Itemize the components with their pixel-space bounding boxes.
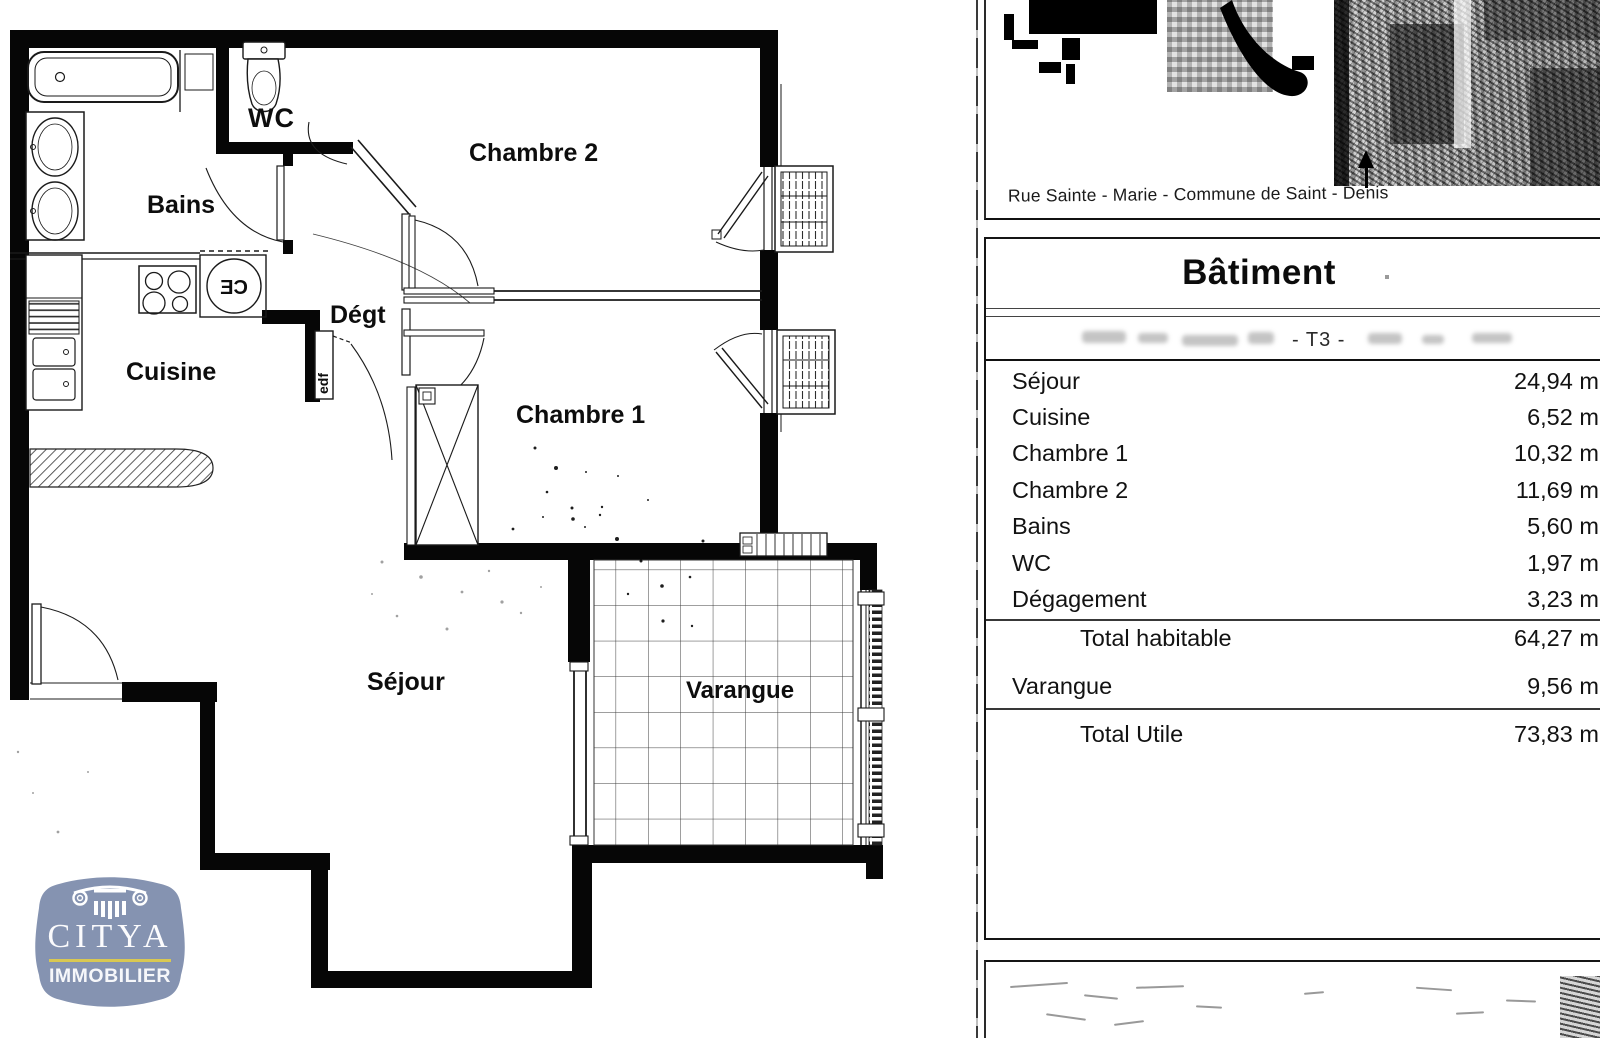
- row-label: Cuisine: [1012, 404, 1090, 431]
- room-label-sejour: Séjour: [367, 668, 445, 696]
- table-title: Bâtiment: [986, 253, 1600, 293]
- logo-tagline: IMMOBILIER: [33, 965, 187, 988]
- rule: [986, 308, 1600, 309]
- row-value: 6,52 m2: [1527, 404, 1600, 431]
- location-header-box: Rue Sainte - Marie - Commune de Saint - …: [984, 0, 1600, 220]
- table-row: Cuisine6,52 m2: [986, 399, 1600, 435]
- chambre2-door-arc: [415, 220, 478, 286]
- rule: [986, 619, 1600, 621]
- total-row-utile: Total Utile 73,83 m2: [986, 721, 1600, 748]
- row-value: 24,94 m2: [1514, 368, 1600, 395]
- citya-logo: CITYA IMMOBILIER: [33, 869, 187, 1011]
- bains-door-leaf: [277, 166, 284, 240]
- surface-rows: Séjour24,94 m2Cuisine6,52 m2Chambre 110,…: [986, 363, 1600, 618]
- subtitle-visible-text: - T3 -: [1292, 329, 1345, 352]
- table-subtitle: - T3 -: [986, 323, 1600, 357]
- toilet: [243, 42, 285, 59]
- row-value: 3,23 m2: [1527, 586, 1600, 613]
- room-label-chambre1: Chambre 1: [516, 401, 645, 429]
- row-label: Total habitable: [1080, 625, 1232, 652]
- chambre2-casement: [718, 172, 762, 234]
- bains-door-arc: [206, 168, 283, 242]
- row-label: Varangue: [1012, 673, 1112, 700]
- table-row: Dégagement3,23 m2: [986, 581, 1600, 617]
- table-row: Chambre 110,32 m2: [986, 436, 1600, 472]
- rule: [986, 359, 1600, 361]
- entry-door-arc: [41, 607, 118, 680]
- row-label: Dégagement: [1012, 586, 1147, 613]
- row-label: WC: [1012, 550, 1051, 577]
- chambre1-casement: [716, 352, 762, 408]
- page-fold-line: [976, 0, 978, 1038]
- row-label: Bains: [1012, 513, 1071, 540]
- degagement-door-arc: [351, 344, 392, 460]
- rule: [986, 708, 1600, 710]
- transom-grille: [740, 533, 827, 556]
- duct: [185, 54, 213, 90]
- row-value: 11,69 m2: [1516, 477, 1600, 504]
- logo-column-icon: [70, 879, 150, 921]
- notes-box: [984, 960, 1600, 1038]
- table-row: Séjour24,94 m2: [986, 363, 1600, 399]
- edf-label: edf: [315, 373, 331, 394]
- row-value: 9,56 m2: [1527, 673, 1600, 700]
- logo-divider: [49, 959, 171, 962]
- scanned-floorplan-page: WC Bains Chambre 2 Dégt Cuisine Chambre …: [0, 0, 1600, 1038]
- room-label-wc: WC: [248, 103, 295, 133]
- row-value: 64,27 m2: [1514, 625, 1600, 652]
- room-label-degt: Dégt: [330, 301, 386, 329]
- table-row: WC1,97 m2: [986, 545, 1600, 581]
- logo-brand-name: CITYA: [33, 918, 187, 956]
- room-label-cuisine: Cuisine: [126, 358, 216, 386]
- address-label: Rue Sainte - Marie - Commune de Saint - …: [1008, 182, 1389, 206]
- chambre1-door-leaf: [404, 330, 484, 336]
- row-value: 1,97 m2: [1527, 550, 1600, 577]
- chambre2-door-leaf: [409, 216, 415, 288]
- closet: [407, 385, 478, 545]
- rule: [986, 316, 1600, 317]
- row-value: 10,32 m2: [1514, 440, 1600, 467]
- total-row-habitable: Total habitable 64,27 m2: [986, 625, 1600, 652]
- table-row: Chambre 211,69 m2: [986, 472, 1600, 508]
- water-heater-label: CE: [220, 277, 248, 299]
- row-value: 73,83 m2: [1514, 721, 1600, 748]
- row-label: Total Utile: [1080, 721, 1183, 748]
- appliance: [29, 301, 79, 334]
- surface-table: Bâtiment - T3 - Séjour24,94 m2Cuisine6,5…: [984, 237, 1600, 940]
- partition-walls: [10, 140, 762, 375]
- map-road-mark: [1214, 0, 1324, 108]
- scan-ghost-mark: [1385, 275, 1389, 279]
- room-label-varangue: Varangue: [686, 677, 794, 704]
- row-label: Chambre 2: [1012, 477, 1128, 504]
- room-label-bains: Bains: [147, 191, 215, 219]
- row-value: 5,60 m2: [1527, 513, 1600, 540]
- table-row: Bains5,60 m2: [986, 509, 1600, 545]
- entry-door-leaf: [32, 604, 41, 684]
- scan-noise-block: [1560, 976, 1600, 1038]
- room-label-chambre2: Chambre 2: [469, 139, 598, 167]
- row-label: Séjour: [1012, 368, 1080, 395]
- breakfast-bar: [30, 449, 213, 487]
- row-label: Chambre 1: [1012, 440, 1128, 467]
- row-varangue: Varangue 9,56 m2: [986, 673, 1600, 700]
